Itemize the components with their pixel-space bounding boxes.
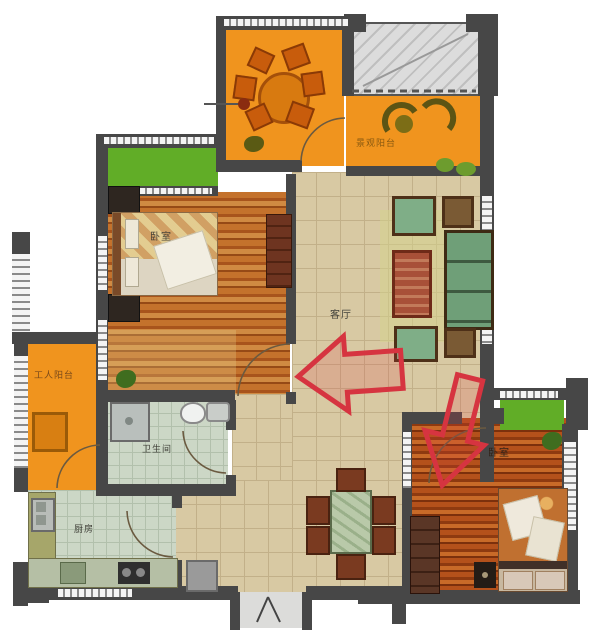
living-room-label: 客厅 — [330, 306, 352, 321]
entry-jamb-left — [230, 592, 240, 630]
second-bedroom-label: 卧室 — [488, 444, 510, 459]
service-balcony-top-wall — [22, 332, 100, 344]
master-balcony-lawn — [106, 146, 218, 190]
kitchen-right-wall-top — [172, 488, 182, 508]
master-nightstand-bottom — [108, 294, 140, 322]
master-nightstand-top — [108, 186, 140, 214]
platform-right-wall — [478, 22, 498, 96]
sink-basin — [36, 502, 46, 512]
hall-chair — [336, 554, 366, 580]
bottom-wall-mid — [306, 586, 362, 600]
second-bedroom-lawn — [500, 400, 564, 430]
living-side-table-top — [442, 196, 474, 228]
master-left-window — [98, 236, 107, 290]
left-outer-window-upper — [12, 254, 30, 332]
burner — [136, 568, 145, 577]
hall-pillar — [186, 560, 218, 592]
bathroom-top-wall — [100, 390, 235, 402]
living-sofa — [444, 230, 494, 330]
master-bed-pillow — [125, 257, 139, 287]
second-bed — [498, 488, 568, 592]
balcony-bath-window — [98, 320, 107, 380]
dining-top-window — [224, 19, 348, 26]
knob — [482, 572, 488, 578]
master-balcony-window — [104, 137, 214, 144]
bathroom-shower — [110, 402, 150, 442]
hatched-platform — [352, 22, 480, 96]
bathroom-toilet — [180, 402, 206, 424]
second-bed-pillow — [535, 571, 565, 590]
hall-dining-table — [330, 490, 372, 554]
balcony-bush — [436, 158, 454, 172]
hall-chair — [306, 496, 330, 525]
kitchen-sink — [31, 498, 55, 532]
second-nightstand — [474, 562, 496, 588]
kitchen-label: 厨房 — [74, 522, 94, 535]
dining-bottom-wall — [218, 160, 302, 172]
bottom-window-left — [58, 589, 132, 597]
balcony-bush — [456, 162, 476, 176]
hall-chair — [306, 526, 330, 555]
entry-jamb-right — [302, 592, 312, 630]
hall-chair — [336, 468, 366, 492]
second-bedroom-left-window — [403, 432, 411, 488]
kitchen-prep-item — [60, 562, 86, 584]
master-bed-headboard — [113, 213, 121, 295]
service-balcony-left-wall-top — [14, 336, 28, 356]
master-wardrobe — [266, 214, 292, 288]
master-bed — [112, 212, 218, 296]
second-bed-headboard — [499, 561, 567, 569]
hall-chair — [372, 496, 396, 525]
kitchen-stove — [118, 562, 150, 584]
entry-steps — [240, 592, 302, 628]
left-outer-wall-upper — [12, 232, 30, 254]
sink-basin — [36, 515, 46, 525]
service-balcony-label: 工人阳台 — [34, 368, 74, 381]
living-armchair-bottom — [394, 326, 438, 362]
master-living-jamb — [286, 392, 296, 404]
shower-drain — [125, 417, 133, 425]
balcony-right-wall — [480, 92, 494, 178]
master-bed-pillow — [125, 219, 139, 249]
washing-machine — [32, 412, 68, 452]
burner — [122, 568, 131, 577]
second-wardrobe — [410, 516, 440, 594]
bathroom-sink — [206, 402, 230, 422]
dining-chair — [232, 75, 257, 102]
corridor-floor — [232, 394, 292, 484]
living-armchair-top — [392, 196, 436, 236]
service-balcony-left-window — [14, 356, 28, 468]
dining-left-wall — [216, 22, 226, 172]
bathroom-bottom-wall — [96, 484, 236, 496]
floor-plan: 景观阳台 卧室 客厅 卫生间 厨房 工人阳台 — [0, 0, 616, 631]
kitchen-bottom-counter — [28, 558, 178, 588]
second-bedroom-top-jamb — [492, 408, 504, 424]
hall-chair — [372, 526, 396, 555]
platform-divider-wall — [342, 18, 354, 96]
service-balcony-left-wall-bottom — [14, 468, 28, 492]
dining-chair — [300, 71, 325, 98]
bathroom-label: 卫生间 — [142, 442, 172, 455]
second-lawn-window — [500, 391, 558, 398]
living-coffee-table — [392, 250, 432, 318]
living-side-table-bottom — [444, 328, 476, 358]
landscape-balcony-label: 景观阳台 — [356, 136, 396, 149]
master-bedroom-label: 卧室 — [150, 228, 172, 243]
second-bedroom-right-block — [566, 378, 588, 430]
second-bed-pillow — [503, 571, 533, 590]
